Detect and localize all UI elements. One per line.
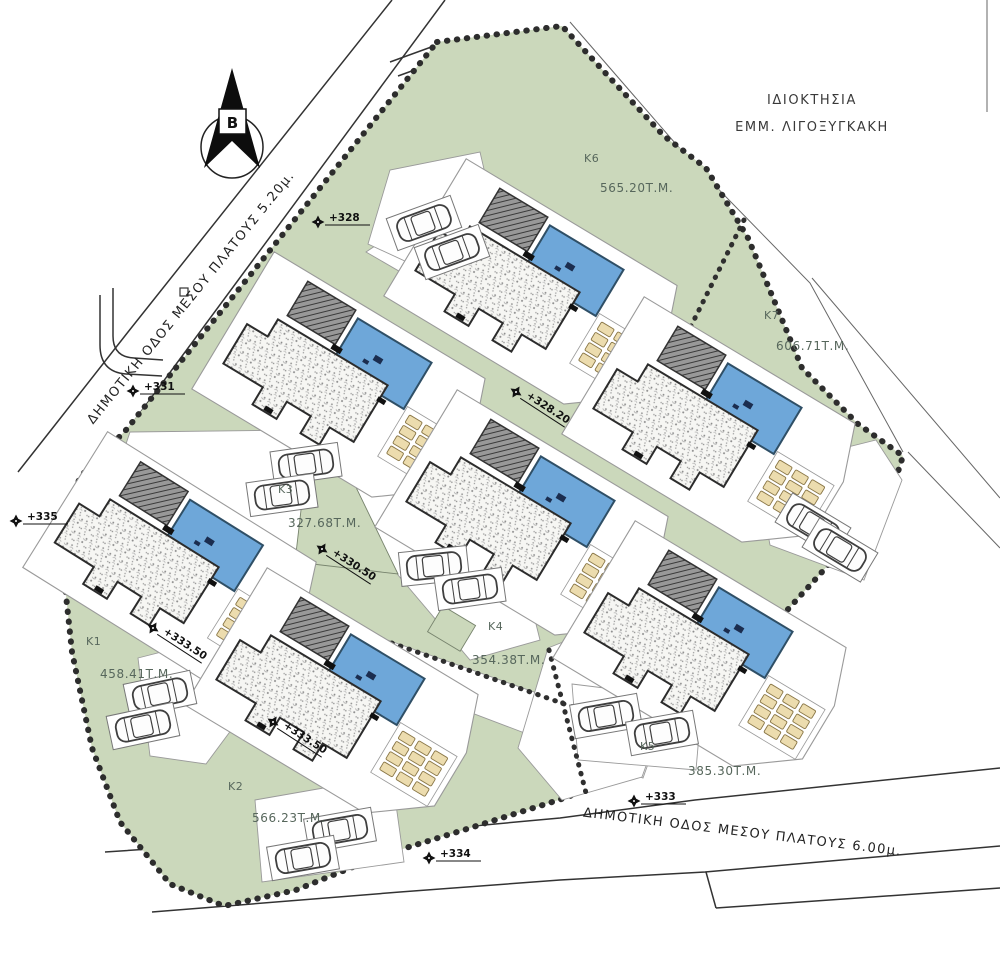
south-road-label: ΔΗΜΟΤΙΚΗ ΟΔΟΣ ΜΕΣΟΥ ΠΛΑΤΟΥΣ 6.00μ. <box>582 806 902 860</box>
svg-text:B: B <box>227 114 238 132</box>
svg-text:327.68Τ.Μ.: 327.68Τ.Μ. <box>288 516 361 530</box>
svg-text:+335: +335 <box>27 511 58 523</box>
svg-text:K7: K7 <box>764 309 779 322</box>
svg-text:458.41Τ.Μ.: 458.41Τ.Μ. <box>100 667 173 681</box>
svg-text:+334: +334 <box>440 848 471 860</box>
north-arrow-icon: B <box>201 68 263 178</box>
svg-text:ΙΔΙΟΚΤΗΣΙΑ: ΙΔΙΟΚΤΗΣΙΑ <box>767 93 857 108</box>
svg-text:385.30Τ.Μ.: 385.30Τ.Μ. <box>688 764 761 778</box>
svg-text:+333: +333 <box>645 791 676 803</box>
svg-text:ΕΜΜ. ΛΙΓΟΞΥΓΚΑΚΗ: ΕΜΜ. ΛΙΓΟΞΥΓΚΑΚΗ <box>735 120 889 135</box>
svg-text:K4: K4 <box>488 620 503 633</box>
site-plan-svg: +328 +331 +335 +328.20 +330.50 +333.50 +… <box>0 0 1000 953</box>
svg-text:K1: K1 <box>86 635 101 648</box>
owner-title: ΙΔΙΟΚΤΗΣΙΑ ΕΜΜ. ΛΙΓΟΞΥΓΚΑΚΗ <box>735 93 889 135</box>
svg-text:354.38Τ.Μ.: 354.38Τ.Μ. <box>472 653 545 667</box>
svg-text:565.20Τ.Μ.: 565.20Τ.Μ. <box>600 181 673 195</box>
svg-text:ΔΗΜΟΤΙΚΗ ΟΔΟΣ ΜΕΣΟΥ ΠΛΑΤΟΥΣ 6.: ΔΗΜΟΤΙΚΗ ΟΔΟΣ ΜΕΣΟΥ ΠΛΑΤΟΥΣ 6.00μ. <box>582 806 902 860</box>
svg-text:606.71Τ.Μ.: 606.71Τ.Μ. <box>776 339 849 353</box>
site-plan-page: +328 +331 +335 +328.20 +330.50 +333.50 +… <box>0 0 1000 953</box>
svg-text:566.23Τ.Μ.: 566.23Τ.Μ. <box>252 811 325 825</box>
survey-marker-334: +334 <box>423 848 482 865</box>
svg-text:K2: K2 <box>228 780 243 793</box>
svg-text:K5: K5 <box>640 740 655 753</box>
svg-text:K3: K3 <box>278 483 293 496</box>
svg-text:K6: K6 <box>584 152 599 165</box>
svg-text:+328: +328 <box>329 212 360 224</box>
svg-text:+331: +331 <box>144 381 175 393</box>
